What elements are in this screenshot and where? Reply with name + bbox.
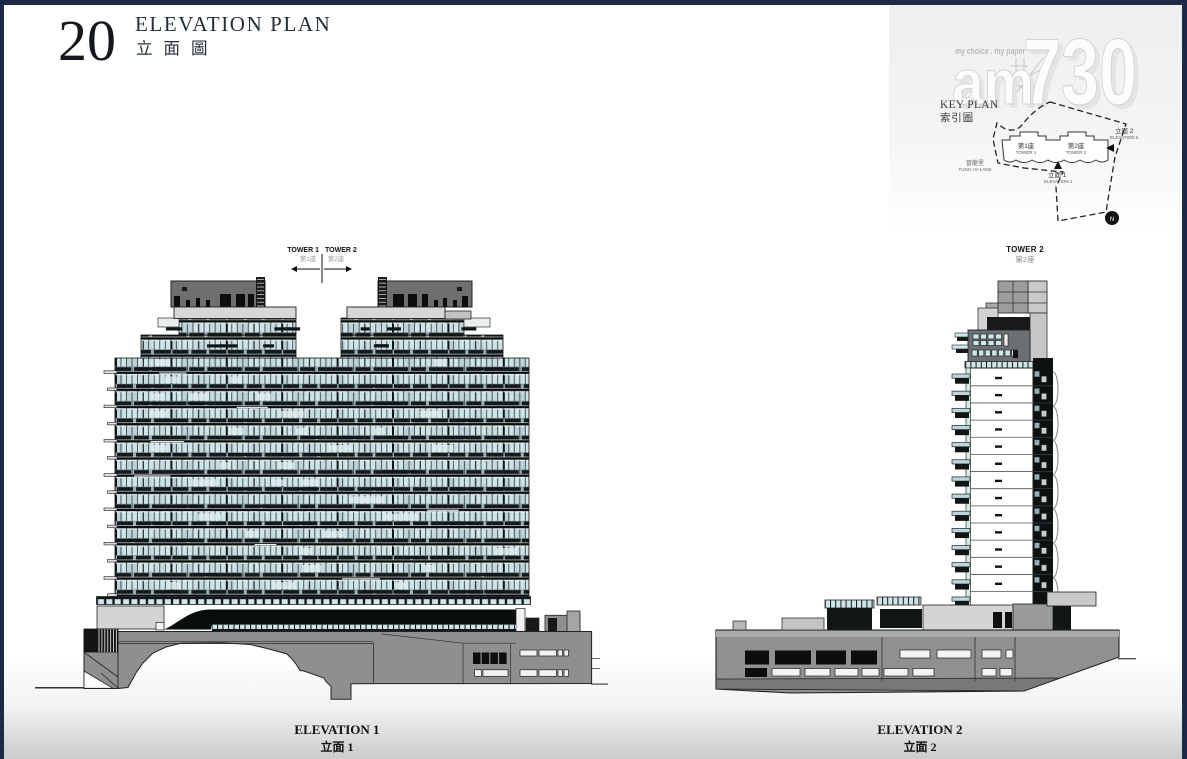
svg-text:立面 1: 立面 1	[1048, 170, 1067, 179]
svg-text:第2座: 第2座	[1068, 141, 1085, 150]
svg-text:第1座: 第1座	[1018, 141, 1035, 150]
svg-text:第1座: 第1座	[300, 254, 317, 263]
svg-text:晉龍里: 晉龍里	[966, 159, 984, 167]
svg-text:索引圖: 索引圖	[940, 111, 974, 124]
svg-text:TOWER 2: TOWER 2	[1066, 150, 1087, 155]
svg-text:TOWER 2: TOWER 2	[325, 247, 357, 254]
svg-text:TOWER 1: TOWER 1	[287, 247, 319, 254]
svg-text:第2座: 第2座	[328, 254, 345, 263]
svg-text:ELEVATION 2: ELEVATION 2	[1110, 135, 1139, 140]
svg-text:TUNG HA LANE: TUNG HA LANE	[958, 167, 991, 172]
svg-text:立面 2: 立面 2	[1115, 126, 1134, 135]
svg-text:ELEVATION 1: ELEVATION 1	[1044, 179, 1073, 184]
svg-text:KEY PLAN: KEY PLAN	[940, 99, 999, 111]
svg-text:N: N	[1110, 217, 1114, 223]
svg-text:TOWER 1: TOWER 1	[1016, 150, 1037, 155]
